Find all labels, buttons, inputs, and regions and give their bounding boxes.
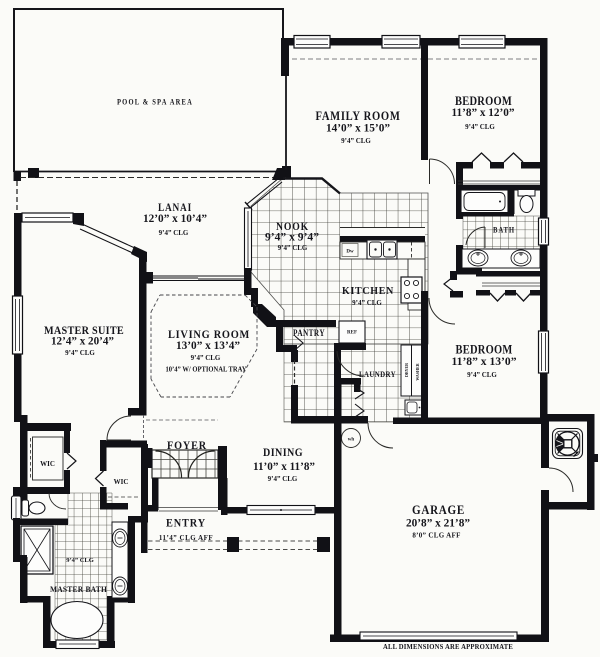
svg-text:GARAGE: GARAGE xyxy=(412,503,465,517)
svg-text:ALL DIMENSIONS ARE APPROXIMATE: ALL DIMENSIONS ARE APPROXIMATE xyxy=(383,643,513,651)
svg-text:BEDROOM: BEDROOM xyxy=(456,343,513,357)
svg-text:WASHER: WASHER xyxy=(415,363,420,380)
svg-text:11’0” x 11’8”: 11’0” x 11’8” xyxy=(253,461,315,473)
svg-text:9’4” CLG: 9’4” CLG xyxy=(65,349,95,357)
svg-text:14’0” x 15’0”: 14’0” x 15’0” xyxy=(326,123,390,135)
svg-text:11’8” x 13’0”: 11’8” x 13’0” xyxy=(452,356,517,368)
svg-text:11’4” CLG AFF: 11’4” CLG AFF xyxy=(159,534,213,542)
svg-text:LAUNDRY: LAUNDRY xyxy=(359,369,396,379)
svg-text:MASTER BATH: MASTER BATH xyxy=(50,585,108,594)
svg-text:8’0” CLG AFF: 8’0” CLG AFF xyxy=(412,532,460,540)
svg-text:REF: REF xyxy=(347,331,357,336)
svg-text:9’4” CLG: 9’4” CLG xyxy=(159,229,189,237)
svg-text:FAMILY ROOM: FAMILY ROOM xyxy=(316,109,401,123)
svg-text:FOYER: FOYER xyxy=(167,438,207,452)
svg-text:12’4” x 20’4”: 12’4” x 20’4” xyxy=(51,336,114,348)
svg-text:BATH: BATH xyxy=(493,226,515,235)
svg-text:9’4” CLG: 9’4” CLG xyxy=(66,557,94,564)
svg-text:ENTRY: ENTRY xyxy=(166,516,206,530)
svg-text:9’4” CLG: 9’4” CLG xyxy=(191,354,221,362)
svg-text:WIC: WIC xyxy=(40,460,55,468)
svg-text:LANAI: LANAI xyxy=(158,200,192,214)
svg-text:DINING: DINING xyxy=(263,445,303,459)
svg-text:KITCHEN: KITCHEN xyxy=(342,285,394,297)
svg-text:12’0” x 10’4”: 12’0” x 10’4” xyxy=(143,213,207,225)
svg-text:9’4” x 9’4”: 9’4” x 9’4” xyxy=(265,232,319,244)
svg-text:9’4” CLG: 9’4” CLG xyxy=(467,371,497,379)
svg-text:Dw: Dw xyxy=(346,250,354,255)
svg-text:DRYER: DRYER xyxy=(404,363,409,377)
svg-text:13’0” x 13’4”: 13’0” x 13’4” xyxy=(176,338,240,352)
svg-text:9’4” CLG: 9’4” CLG xyxy=(341,137,371,145)
svg-text:11’8” x 12’0”: 11’8” x 12’0” xyxy=(452,107,515,119)
svg-text:WIC: WIC xyxy=(114,478,129,486)
svg-text:9’4” CLG: 9’4” CLG xyxy=(352,299,382,307)
svg-text:9’4” CLG: 9’4” CLG xyxy=(278,244,308,252)
svg-text:9’4” CLG: 9’4” CLG xyxy=(465,123,495,131)
svg-text:POOL & SPA AREA: POOL & SPA AREA xyxy=(117,97,193,107)
svg-text:20’8” x 21’8”: 20’8” x 21’8” xyxy=(406,518,470,530)
svg-text:PANTRY: PANTRY xyxy=(293,328,325,338)
svg-text:wh: wh xyxy=(348,438,355,443)
svg-text:10’4” W/ OPTIONAL TRAY: 10’4” W/ OPTIONAL TRAY xyxy=(166,366,247,374)
svg-text:BEDROOM: BEDROOM xyxy=(455,94,512,108)
svg-text:9’4” CLG: 9’4” CLG xyxy=(268,475,298,483)
